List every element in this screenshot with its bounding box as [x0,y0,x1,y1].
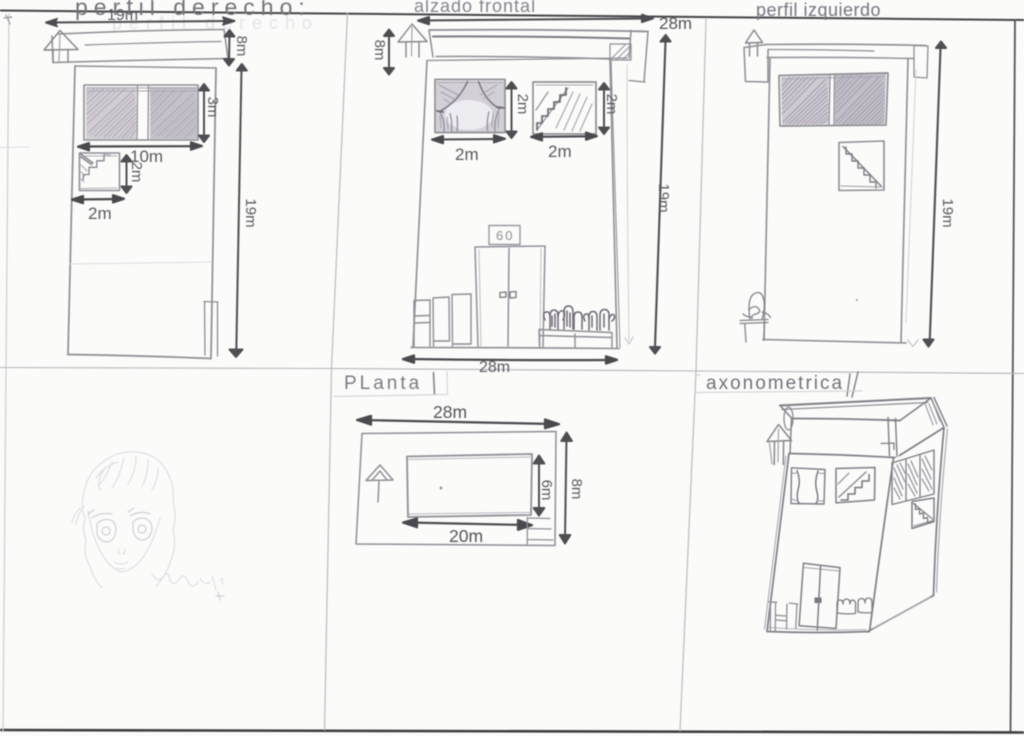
svg-text:2m: 2m [88,204,112,223]
svg-text:19m: 19m [242,198,259,227]
svg-text:60: 60 [496,228,514,243]
svg-text:2m: 2m [455,145,479,164]
svg-text:perfil izquierdo: perfil izquierdo [756,0,881,20]
svg-text:19m: 19m [655,183,672,212]
svg-text:8m: 8m [233,36,250,57]
svg-text:19m: 19m [939,198,956,227]
svg-text:28m: 28m [479,359,510,376]
svg-text:3m: 3m [204,97,221,118]
svg-text:2m: 2m [128,162,145,183]
svg-text:20m: 20m [449,526,483,546]
svg-text:6m: 6m [538,480,555,501]
svg-text:19m: 19m [107,7,138,24]
svg-text:alzado frontal: alzado frontal [414,0,536,16]
svg-text:28m: 28m [659,14,692,33]
svg-text:8m: 8m [371,40,388,61]
svg-text:8m: 8m [568,479,585,500]
svg-text:2m: 2m [548,142,572,161]
svg-text:PLanta: PLanta [344,373,422,394]
svg-text:2m: 2m [603,94,620,115]
svg-text:2m: 2m [514,94,531,115]
svg-text:28m: 28m [433,402,467,422]
